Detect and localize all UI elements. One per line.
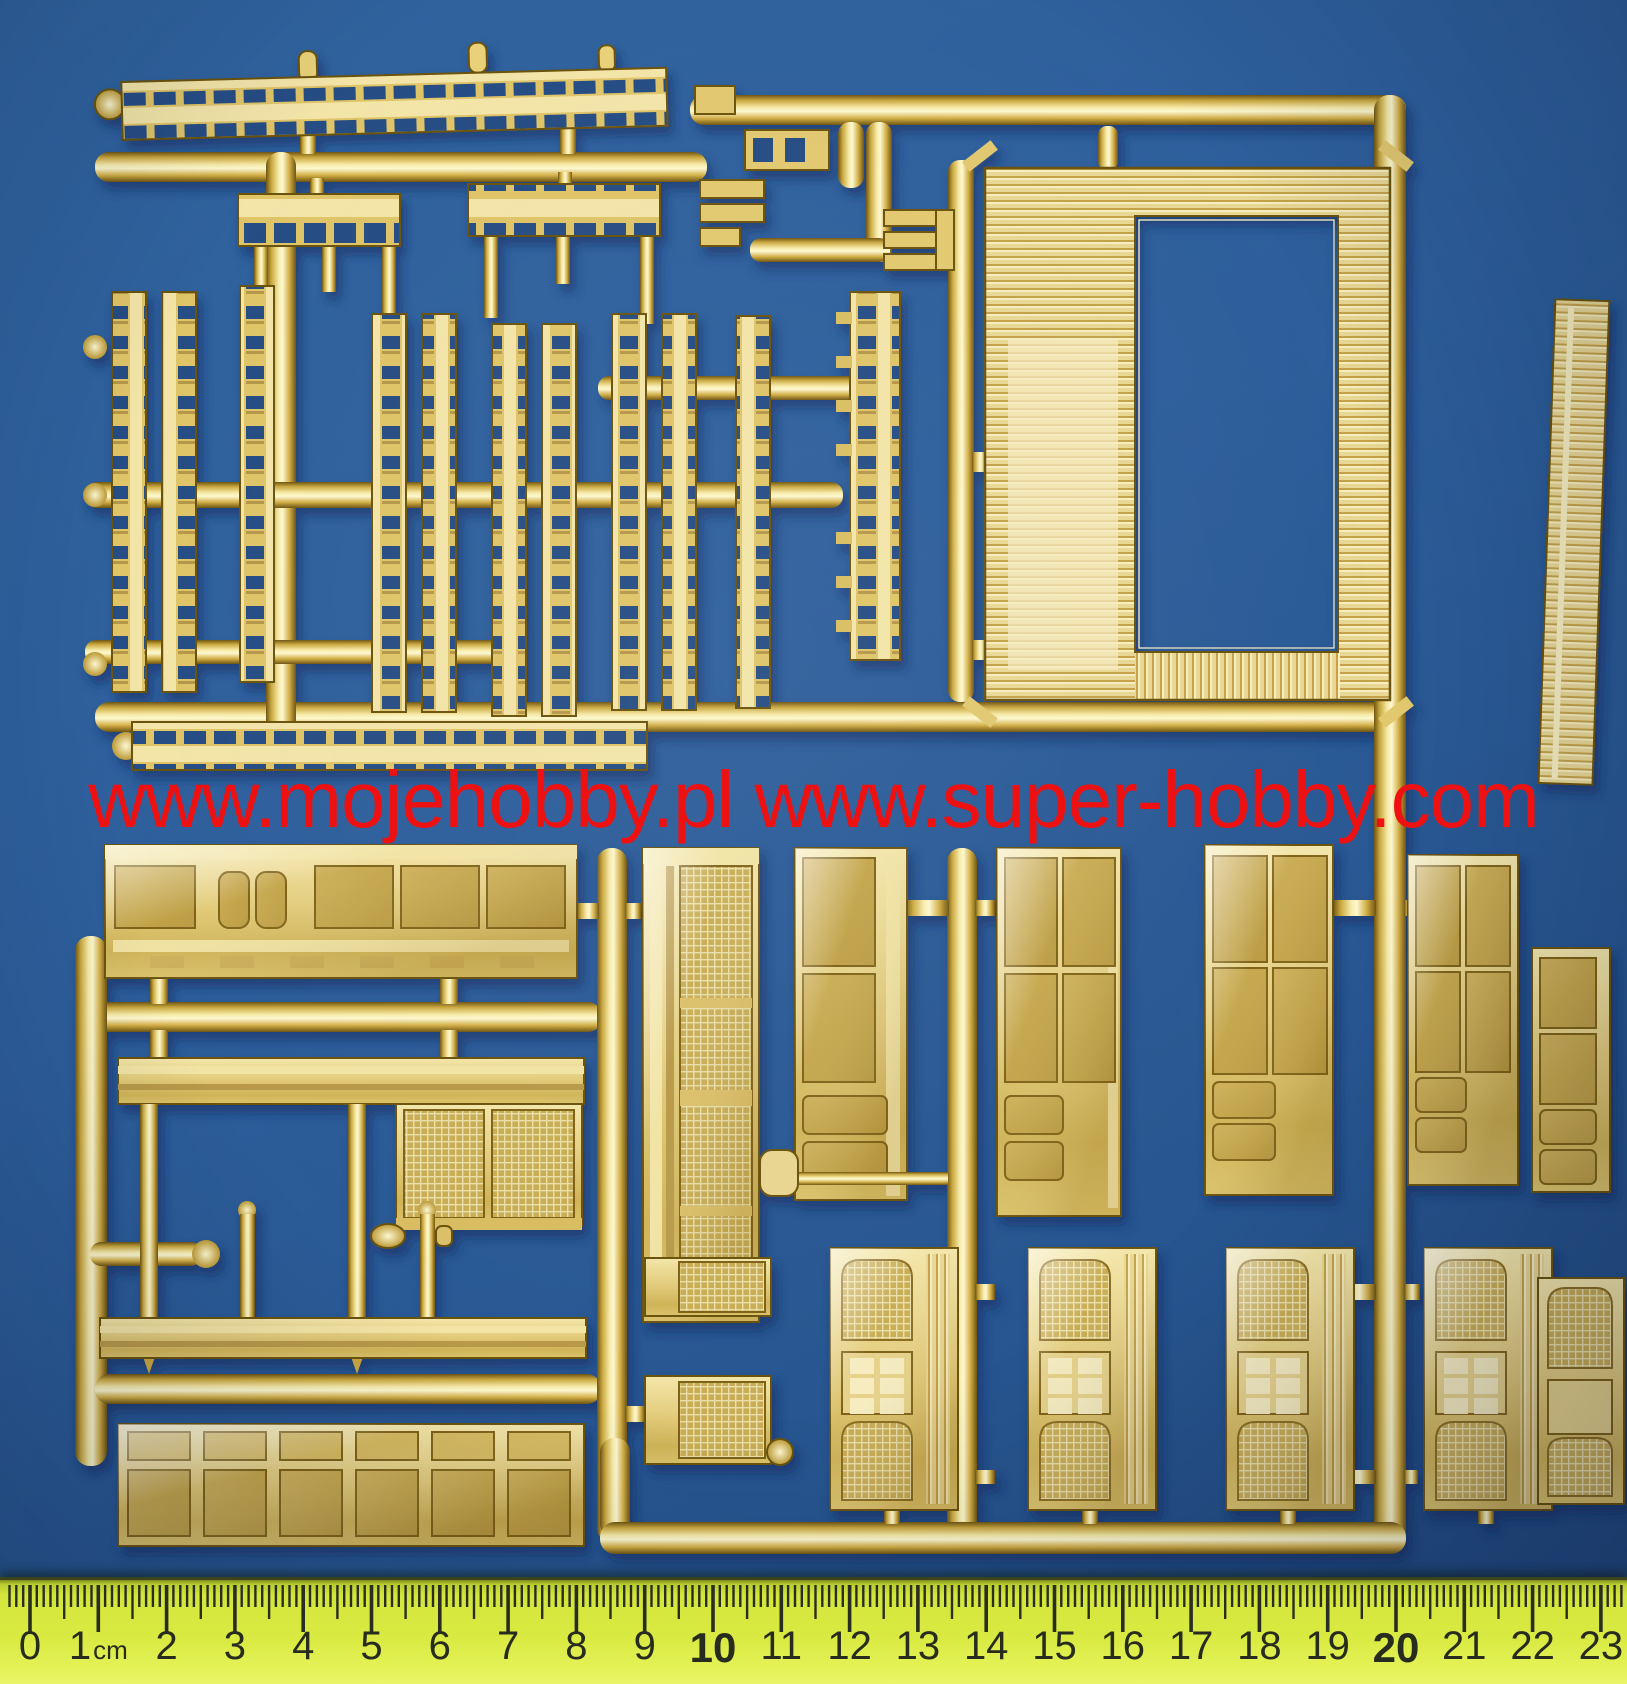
watermark-text: www.mojehobby.pl www.super-hobby.com bbox=[0, 758, 1627, 842]
part-door-panel-1 bbox=[795, 848, 907, 1200]
part-seat-panel bbox=[1226, 1248, 1354, 1510]
ruler-number: 11 bbox=[761, 1624, 803, 1669]
ruler-number: 10 bbox=[690, 1624, 737, 1672]
ruler-number: 2 bbox=[155, 1624, 177, 1669]
part-edge-strip bbox=[1539, 299, 1610, 785]
ruler-number: 19 bbox=[1305, 1624, 1350, 1669]
part-door-panel-2 bbox=[997, 848, 1121, 1216]
part-carriage-side bbox=[105, 845, 577, 978]
ruler-number: 22 bbox=[1510, 1624, 1555, 1669]
ruler-number: 23 bbox=[1579, 1624, 1624, 1669]
ruler-number: 12 bbox=[827, 1624, 872, 1669]
ruler-number: 4 bbox=[292, 1624, 314, 1669]
ruler-number: 20 bbox=[1373, 1624, 1420, 1672]
ruler-number: 9 bbox=[634, 1624, 656, 1669]
part-lower-panel bbox=[118, 1424, 584, 1546]
ruler-number: 0 bbox=[19, 1624, 41, 1669]
ruler-number: 13 bbox=[896, 1624, 941, 1669]
part-seat-panel-edge bbox=[1538, 1278, 1624, 1504]
part-roof-frame bbox=[962, 140, 1414, 728]
ruler-number: 5 bbox=[360, 1624, 382, 1669]
part-door-panel-3 bbox=[1205, 845, 1333, 1195]
ruler-number: 17 bbox=[1169, 1624, 1214, 1669]
ruler-number: 15 bbox=[1032, 1624, 1077, 1669]
part-ladder-array bbox=[83, 286, 770, 716]
part-door-panel-4 bbox=[1408, 855, 1518, 1185]
ruler-number: 3 bbox=[224, 1624, 246, 1669]
ruler-number: 14 bbox=[964, 1624, 1009, 1669]
ruler: 01cm234567891011121314151617181920212223 bbox=[0, 1577, 1627, 1684]
part-seat-panel bbox=[830, 1248, 958, 1510]
ruler-number: 21 bbox=[1442, 1624, 1487, 1669]
part-rack-strip bbox=[836, 292, 900, 660]
ruler-number: 18 bbox=[1237, 1624, 1282, 1669]
part-stove-boxes bbox=[645, 1258, 793, 1465]
part-seat-panel bbox=[1424, 1248, 1552, 1510]
photo: www.mojehobby.pl www.super-hobby.com 01c… bbox=[0, 0, 1627, 1684]
part-grille-panel bbox=[643, 848, 759, 1322]
part-roof-walkway bbox=[93, 38, 667, 141]
ruler-number: 6 bbox=[429, 1624, 451, 1669]
ruler-number: 1cm bbox=[69, 1624, 128, 1669]
part-ladder-segment-right bbox=[468, 184, 660, 324]
part-running-board bbox=[100, 1318, 586, 1358]
ruler-number: 7 bbox=[497, 1624, 519, 1669]
ruler-number: 8 bbox=[565, 1624, 587, 1669]
part-door-panel-5 bbox=[1532, 948, 1610, 1192]
ruler-number: 16 bbox=[1101, 1624, 1146, 1669]
part-shutter-block bbox=[371, 1104, 582, 1248]
part-seat-panel bbox=[1028, 1248, 1156, 1510]
